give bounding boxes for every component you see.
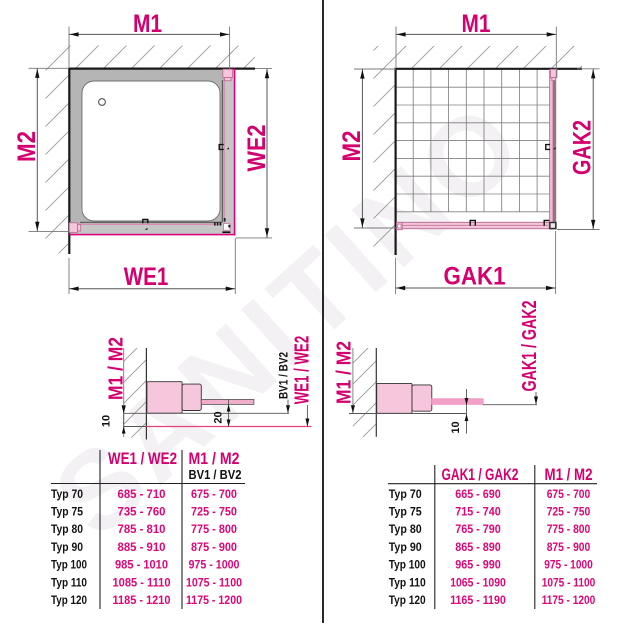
svg-text:875 - 900: 875 - 900 [191,540,237,554]
svg-text:1085 - 1110: 1085 - 1110 [113,575,171,589]
svg-text:975 - 1000: 975 - 1000 [189,558,240,572]
svg-text:GAK1 / GAK2: GAK1 / GAK2 [519,301,541,392]
svg-text:Typ 80: Typ 80 [389,522,422,536]
svg-text:Typ 100: Typ 100 [51,558,87,572]
svg-text:WE2: WE2 [243,125,271,172]
svg-text:Typ 75: Typ 75 [389,505,422,519]
svg-text:M1 / M2: M1 / M2 [105,337,127,400]
svg-text:715 - 740: 715 - 740 [455,505,501,519]
svg-text:885 - 910: 885 - 910 [118,540,166,554]
svg-text:Typ 80: Typ 80 [51,522,83,536]
svg-text:Typ 120: Typ 120 [389,593,426,607]
svg-text:675 - 700: 675 - 700 [191,487,237,501]
svg-text:785 - 810: 785 - 810 [118,522,166,536]
svg-text:Typ 90: Typ 90 [389,540,422,554]
svg-text:685 - 710: 685 - 710 [118,487,166,501]
svg-text:665 - 690: 665 - 690 [455,487,501,501]
svg-text:725 - 750: 725 - 750 [547,505,591,519]
svg-text:M1 / M2: M1 / M2 [189,449,240,468]
svg-text:1175 - 1200: 1175 - 1200 [186,593,242,607]
svg-text:1075 - 1100: 1075 - 1100 [542,575,596,589]
svg-text:M2: M2 [338,131,366,162]
svg-text:Typ 90: Typ 90 [51,540,83,554]
svg-text:875 - 900: 875 - 900 [547,540,591,554]
svg-text:1165 - 1190: 1165 - 1190 [450,593,506,607]
svg-text:WE1 / WE2: WE1 / WE2 [292,336,314,405]
svg-text:BV1 / BV2: BV1 / BV2 [189,468,242,482]
svg-text:M1: M1 [462,10,491,38]
svg-text:Typ 100: Typ 100 [389,558,426,572]
svg-text:985 - 1010: 985 - 1010 [115,558,168,572]
svg-text:1075 - 1100: 1075 - 1100 [186,575,242,589]
svg-text:10: 10 [101,415,113,427]
svg-text:965 - 990: 965 - 990 [455,558,501,572]
svg-text:Typ 75: Typ 75 [51,505,83,519]
svg-text:GAK1: GAK1 [444,263,506,291]
svg-text:865 - 890: 865 - 890 [455,540,501,554]
svg-text:735 - 760: 735 - 760 [118,505,166,519]
svg-text:Typ 120: Typ 120 [51,593,87,607]
svg-text:675 - 700: 675 - 700 [547,487,591,501]
svg-text:GAK2: GAK2 [569,120,597,175]
svg-text:M2: M2 [13,131,41,162]
svg-text:10: 10 [450,421,462,433]
svg-text:775 - 800: 775 - 800 [191,522,237,536]
svg-text:BV1 / BV2: BV1 / BV2 [276,352,290,399]
svg-text:1065 - 1090: 1065 - 1090 [450,575,506,589]
svg-text:WE1 / WE2: WE1 / WE2 [108,449,177,468]
svg-text:Typ 110: Typ 110 [389,575,426,589]
svg-text:Typ 70: Typ 70 [51,487,83,501]
svg-text:1175 - 1200: 1175 - 1200 [542,593,596,607]
svg-text:775 - 800: 775 - 800 [547,522,591,536]
svg-text:WE1: WE1 [124,263,169,291]
svg-text:975 - 1000: 975 - 1000 [544,558,593,572]
svg-text:M1: M1 [133,10,162,38]
svg-text:Typ 70: Typ 70 [389,487,422,501]
svg-text:GAK1 / GAK2: GAK1 / GAK2 [442,465,519,484]
svg-text:725 - 750: 725 - 750 [191,505,237,519]
svg-text:1185 - 1210: 1185 - 1210 [113,593,171,607]
svg-text:M1 / M2: M1 / M2 [333,341,355,404]
svg-text:20: 20 [213,411,225,423]
svg-text:Typ 110: Typ 110 [51,575,87,589]
svg-text:M1 / M2: M1 / M2 [545,465,593,484]
svg-text:765 - 790: 765 - 790 [455,522,501,536]
